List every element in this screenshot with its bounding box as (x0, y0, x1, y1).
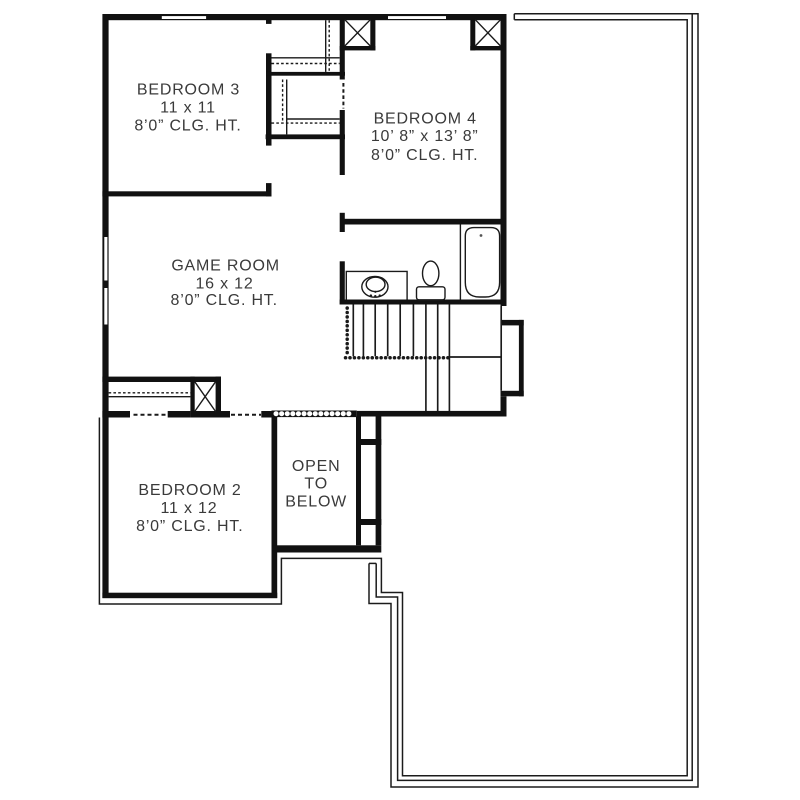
svg-text:TO: TO (304, 475, 328, 492)
svg-text:BEDROOM 3: BEDROOM 3 (137, 82, 240, 99)
svg-text:BEDROOM 2: BEDROOM 2 (138, 482, 241, 499)
svg-text:8’0” CLG. HT.: 8’0” CLG. HT. (371, 147, 478, 164)
svg-text:8’0” CLG. HT.: 8’0” CLG. HT. (171, 292, 278, 309)
svg-text:11 x 12: 11 x 12 (161, 500, 218, 517)
svg-text:8’0” CLG. HT.: 8’0” CLG. HT. (134, 118, 241, 135)
svg-text:16 x 12: 16 x 12 (195, 275, 253, 292)
svg-text:BELOW: BELOW (285, 493, 347, 510)
svg-text:8’0” CLG. HT.: 8’0” CLG. HT. (136, 518, 243, 535)
svg-text:11 x 11: 11 x 11 (160, 100, 216, 117)
svg-text:BEDROOM 4: BEDROOM 4 (374, 111, 477, 128)
svg-text:GAME ROOM: GAME ROOM (171, 257, 280, 274)
svg-text:10’ 8” x 13’ 8”: 10’ 8” x 13’ 8” (371, 128, 479, 145)
svg-text:OPEN: OPEN (292, 458, 341, 475)
